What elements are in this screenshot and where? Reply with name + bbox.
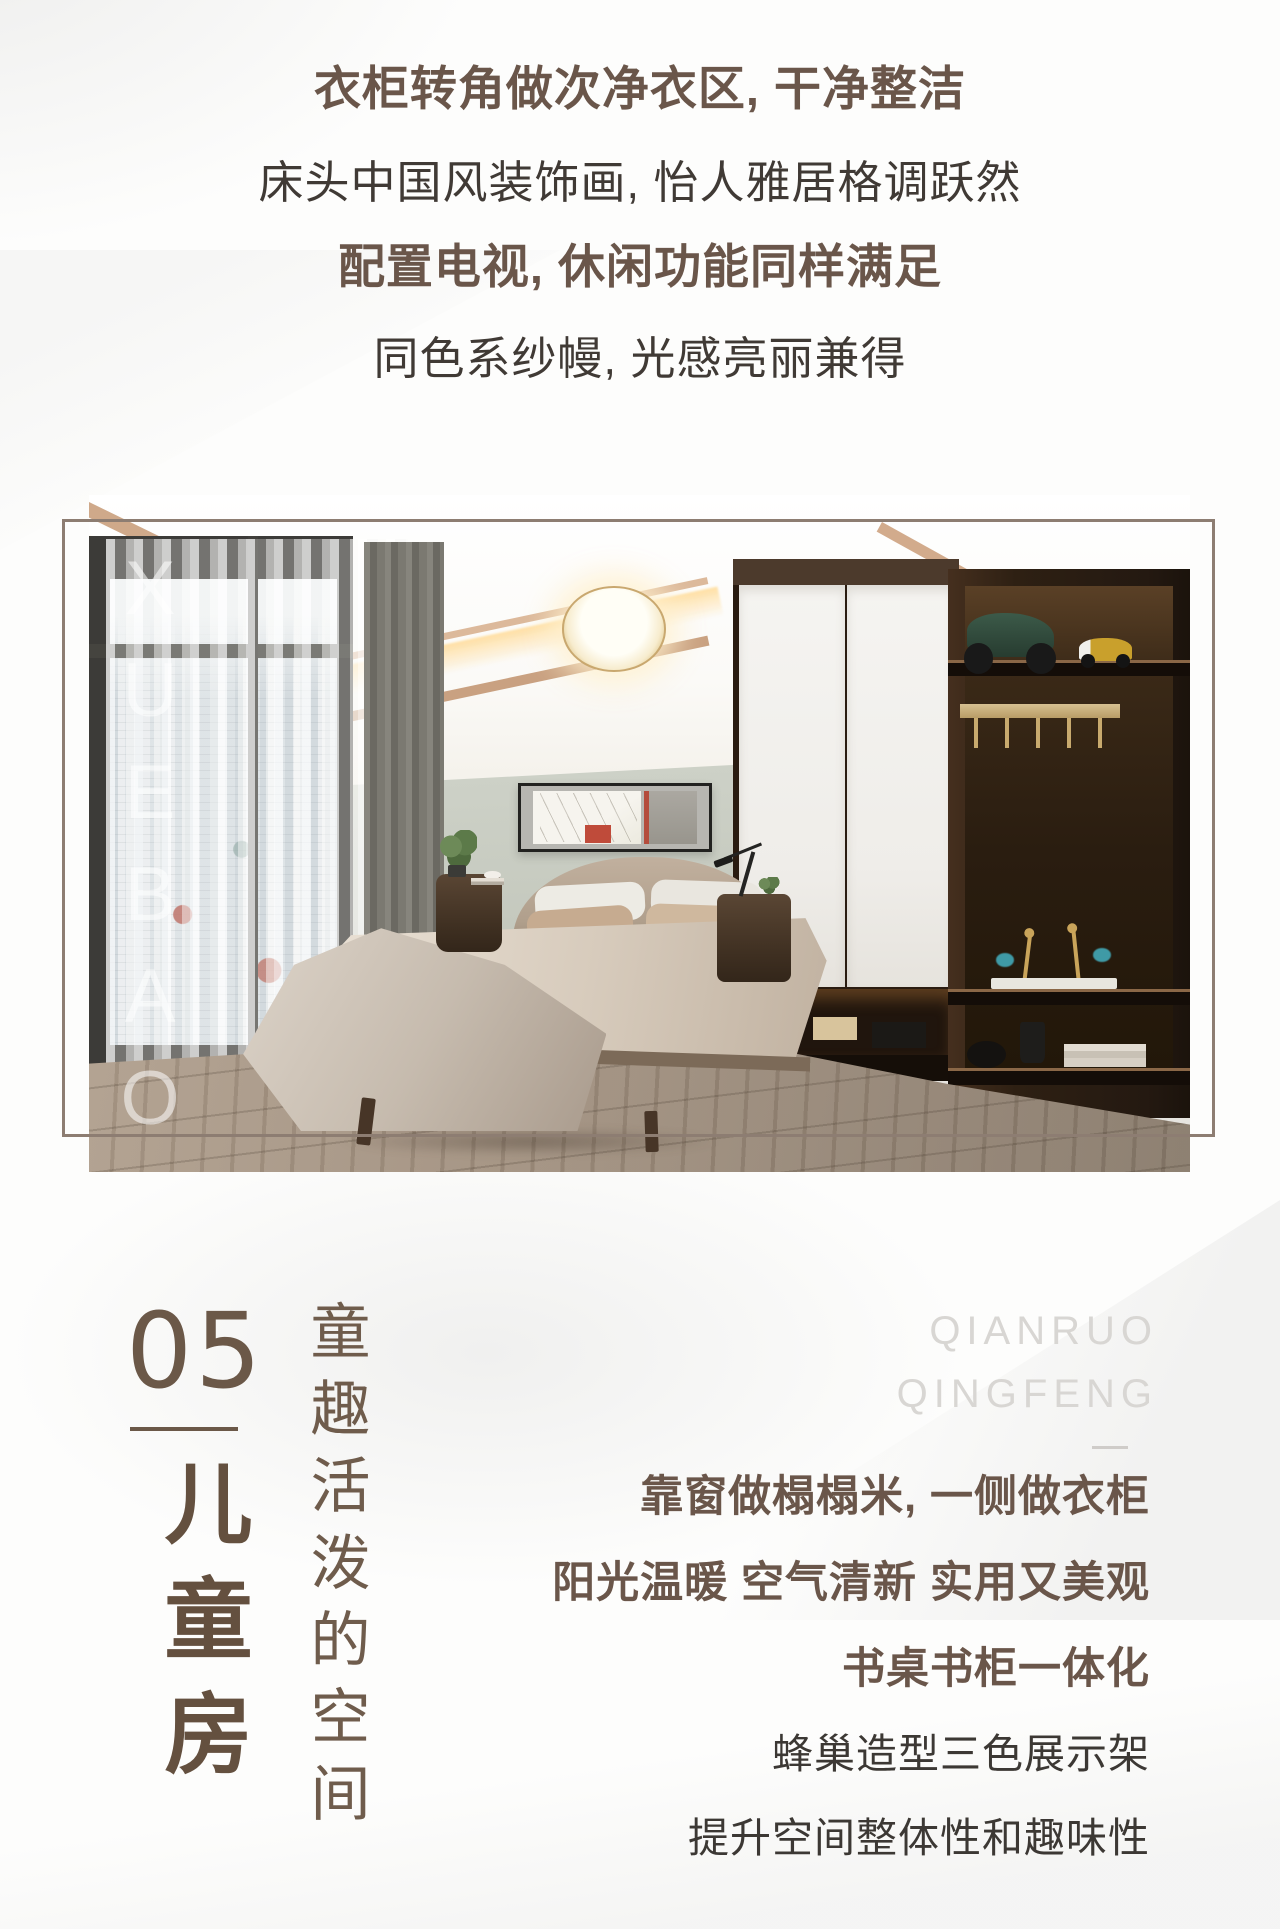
photo-frame-border (62, 519, 1215, 1137)
intro-line-2: 床头中国风装饰画, 怡人雅居格调跃然 (0, 146, 1280, 211)
brand-line-2: QINGFENG (897, 1363, 1158, 1426)
description-line-4: 蜂巢造型三色展示架 (552, 1720, 1150, 1780)
description-line-5: 提升空间整体性和趣味性 (552, 1804, 1150, 1864)
section-number: 05 (126, 1290, 264, 1412)
brand-line-1: QIANRUO (897, 1300, 1158, 1363)
description-line-1: 靠窗做榻榻米, 一侧做衣柜 (552, 1462, 1150, 1524)
description-line-2: 阳光温暖 空气清新 实用又美观 (552, 1548, 1150, 1610)
brand-dash (1092, 1446, 1128, 1449)
description-line-3: 书桌书柜一体化 (552, 1634, 1150, 1696)
section-title-vertical: 儿童房 (138, 1458, 265, 1828)
intro-line-3: 配置电视, 休闲功能同样满足 (0, 228, 1280, 297)
section-subtitle-vertical: 童趣活泼的空间 (292, 1300, 379, 1880)
description-block: 靠窗做榻榻米, 一侧做衣柜 阳光温暖 空气清新 实用又美观 书桌书柜一体化 蜂巢… (552, 1462, 1150, 1888)
intro-line-4: 同色系纱幔, 光感亮丽兼得 (0, 322, 1280, 387)
section-number-underline (130, 1427, 238, 1431)
intro-line-1: 衣柜转角做次净衣区, 干净整洁 (0, 50, 1280, 119)
brand-watermark: QIANRUO QINGFENG (897, 1300, 1158, 1449)
